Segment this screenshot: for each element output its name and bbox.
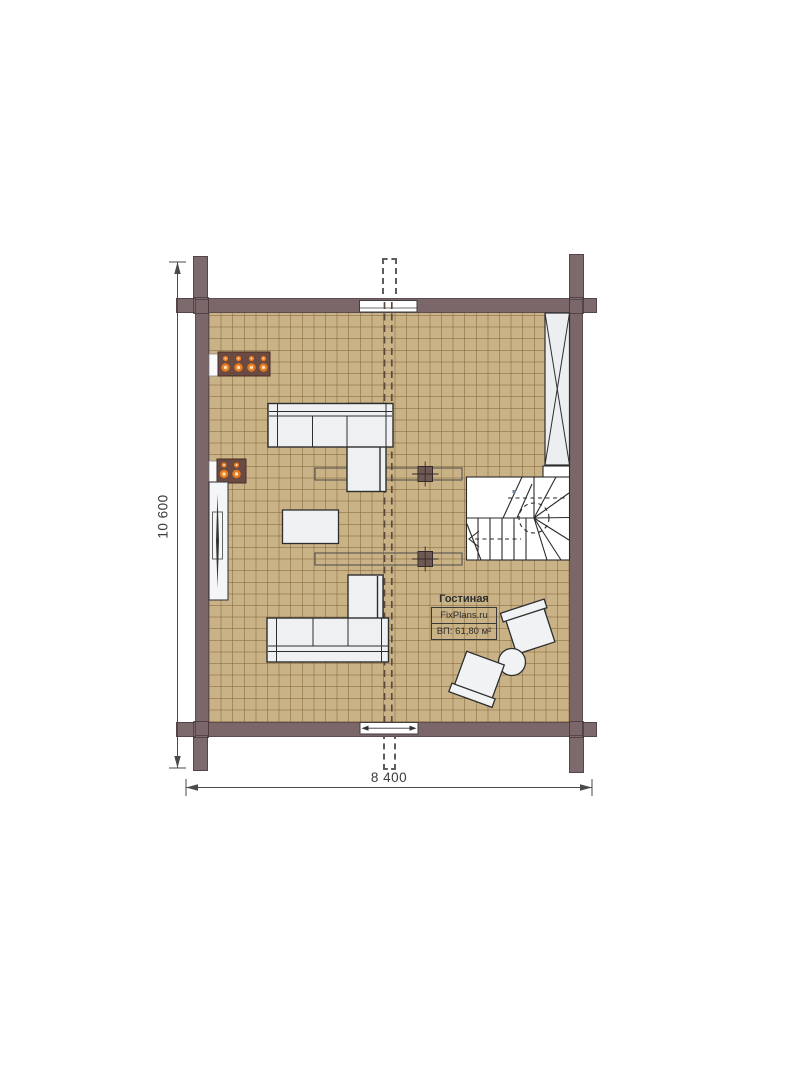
duct-dashed-outline (383, 733, 396, 770)
floor-plan: 10 600 8 400 Гостиная FixPlans.ru ВП: 61… (0, 0, 792, 1080)
corner-joint-top-right (569, 297, 584, 314)
post-bottom-right (569, 735, 584, 773)
corner-joint-top-left (193, 297, 209, 314)
corner-joint-bottom-left (193, 721, 209, 738)
area-label: ВП: 61,80 м² (432, 623, 496, 639)
post-top-left (193, 256, 208, 300)
stub-top-right (582, 298, 597, 313)
stub-bottom-right (582, 722, 597, 737)
dim-label-height: 10 600 (156, 487, 171, 547)
floor-tiles (209, 313, 569, 722)
brand-label: FixPlans.ru (432, 608, 496, 623)
wall-left (195, 298, 209, 737)
wall-top (195, 298, 583, 313)
dim-line-vertical (169, 262, 186, 768)
plan-info-box: FixPlans.ru ВП: 61,80 м² (431, 607, 497, 640)
dim-label-width: 8 400 (359, 770, 419, 785)
wall-bottom (195, 722, 583, 737)
room-label: Гостиная (423, 593, 505, 605)
wall-right (569, 298, 583, 737)
corner-joint-bottom-right (569, 721, 584, 738)
post-top-right (569, 254, 584, 300)
post-bottom-left (193, 735, 208, 771)
